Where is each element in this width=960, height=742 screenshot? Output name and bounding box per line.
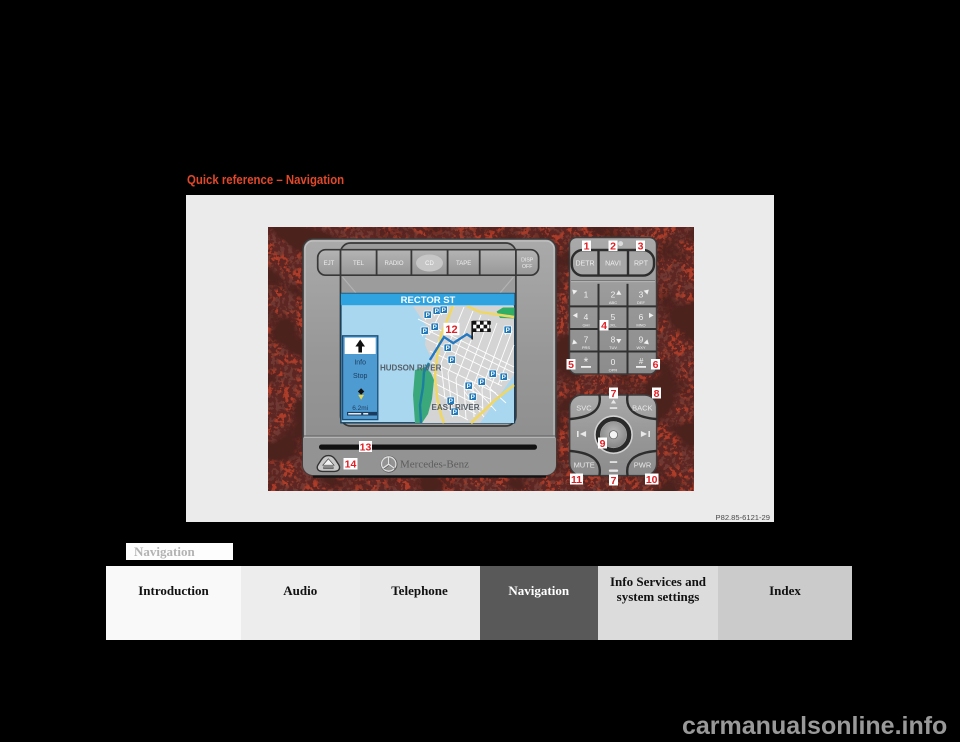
svg-text:6: 6 xyxy=(653,359,659,371)
svg-text:MNO: MNO xyxy=(636,323,645,328)
svg-text:RPT: RPT xyxy=(634,261,649,268)
svg-text:DEF: DEF xyxy=(637,300,646,305)
svg-text:MUTE: MUTE xyxy=(574,460,595,469)
svg-text:8: 8 xyxy=(654,388,660,400)
svg-text:CD: CD xyxy=(425,261,434,267)
svg-text:2: 2 xyxy=(611,290,616,300)
svg-text:PWR: PWR xyxy=(634,460,652,469)
svg-text:PRS: PRS xyxy=(582,345,591,350)
svg-text:SVC: SVC xyxy=(576,404,592,413)
svg-text:4: 4 xyxy=(584,312,589,322)
svg-text:Stop: Stop xyxy=(353,373,368,380)
svg-text:#: # xyxy=(639,357,644,366)
svg-text:7: 7 xyxy=(611,475,617,487)
svg-text:GHI: GHI xyxy=(582,323,589,328)
svg-text:ABC: ABC xyxy=(609,300,617,305)
svg-text:6: 6 xyxy=(639,312,644,322)
svg-text:9: 9 xyxy=(639,335,644,345)
svg-text:7: 7 xyxy=(584,335,589,345)
svg-text:EAST RIVER: EAST RIVER xyxy=(432,403,480,412)
svg-text:13: 13 xyxy=(360,441,372,453)
svg-text:7: 7 xyxy=(611,388,617,400)
svg-text:5: 5 xyxy=(568,359,574,371)
svg-text:TUV: TUV xyxy=(609,345,617,350)
svg-text:Mercedes-Benz: Mercedes-Benz xyxy=(400,459,469,471)
svg-text:RECTOR ST: RECTOR ST xyxy=(401,295,456,306)
svg-text:4: 4 xyxy=(601,320,607,332)
svg-text:9: 9 xyxy=(600,438,606,450)
svg-text:0: 0 xyxy=(611,357,616,367)
svg-text:NAVI: NAVI xyxy=(605,261,621,268)
svg-text:TAPE: TAPE xyxy=(456,261,471,267)
svg-text:3: 3 xyxy=(638,241,644,253)
svg-text:RADIO: RADIO xyxy=(384,261,403,267)
svg-text:EJT: EJT xyxy=(324,261,335,267)
svg-text:5: 5 xyxy=(611,312,616,322)
svg-text:WXY: WXY xyxy=(636,345,645,350)
svg-text:14: 14 xyxy=(345,459,357,471)
svg-text:11: 11 xyxy=(571,474,582,486)
svg-text:8: 8 xyxy=(611,335,616,345)
svg-text:OPR: OPR xyxy=(609,368,618,373)
svg-text:OFF: OFF xyxy=(522,264,532,270)
svg-text:BACK: BACK xyxy=(632,404,652,413)
svg-text:DISP: DISP xyxy=(521,258,534,264)
svg-text:TEL: TEL xyxy=(353,261,365,267)
svg-text:JKL: JKL xyxy=(610,323,618,328)
svg-text:10: 10 xyxy=(646,474,658,486)
svg-text:12: 12 xyxy=(445,324,457,336)
svg-text:6.2mi: 6.2mi xyxy=(352,405,368,412)
svg-text:Info: Info xyxy=(354,360,366,367)
svg-text:3: 3 xyxy=(639,290,644,300)
svg-text:HUDSON RIVER: HUDSON RIVER xyxy=(380,364,442,373)
svg-text:1: 1 xyxy=(584,290,589,300)
svg-text:1: 1 xyxy=(584,241,590,253)
svg-text:2: 2 xyxy=(610,241,616,253)
svg-text:DETR: DETR xyxy=(575,261,594,268)
